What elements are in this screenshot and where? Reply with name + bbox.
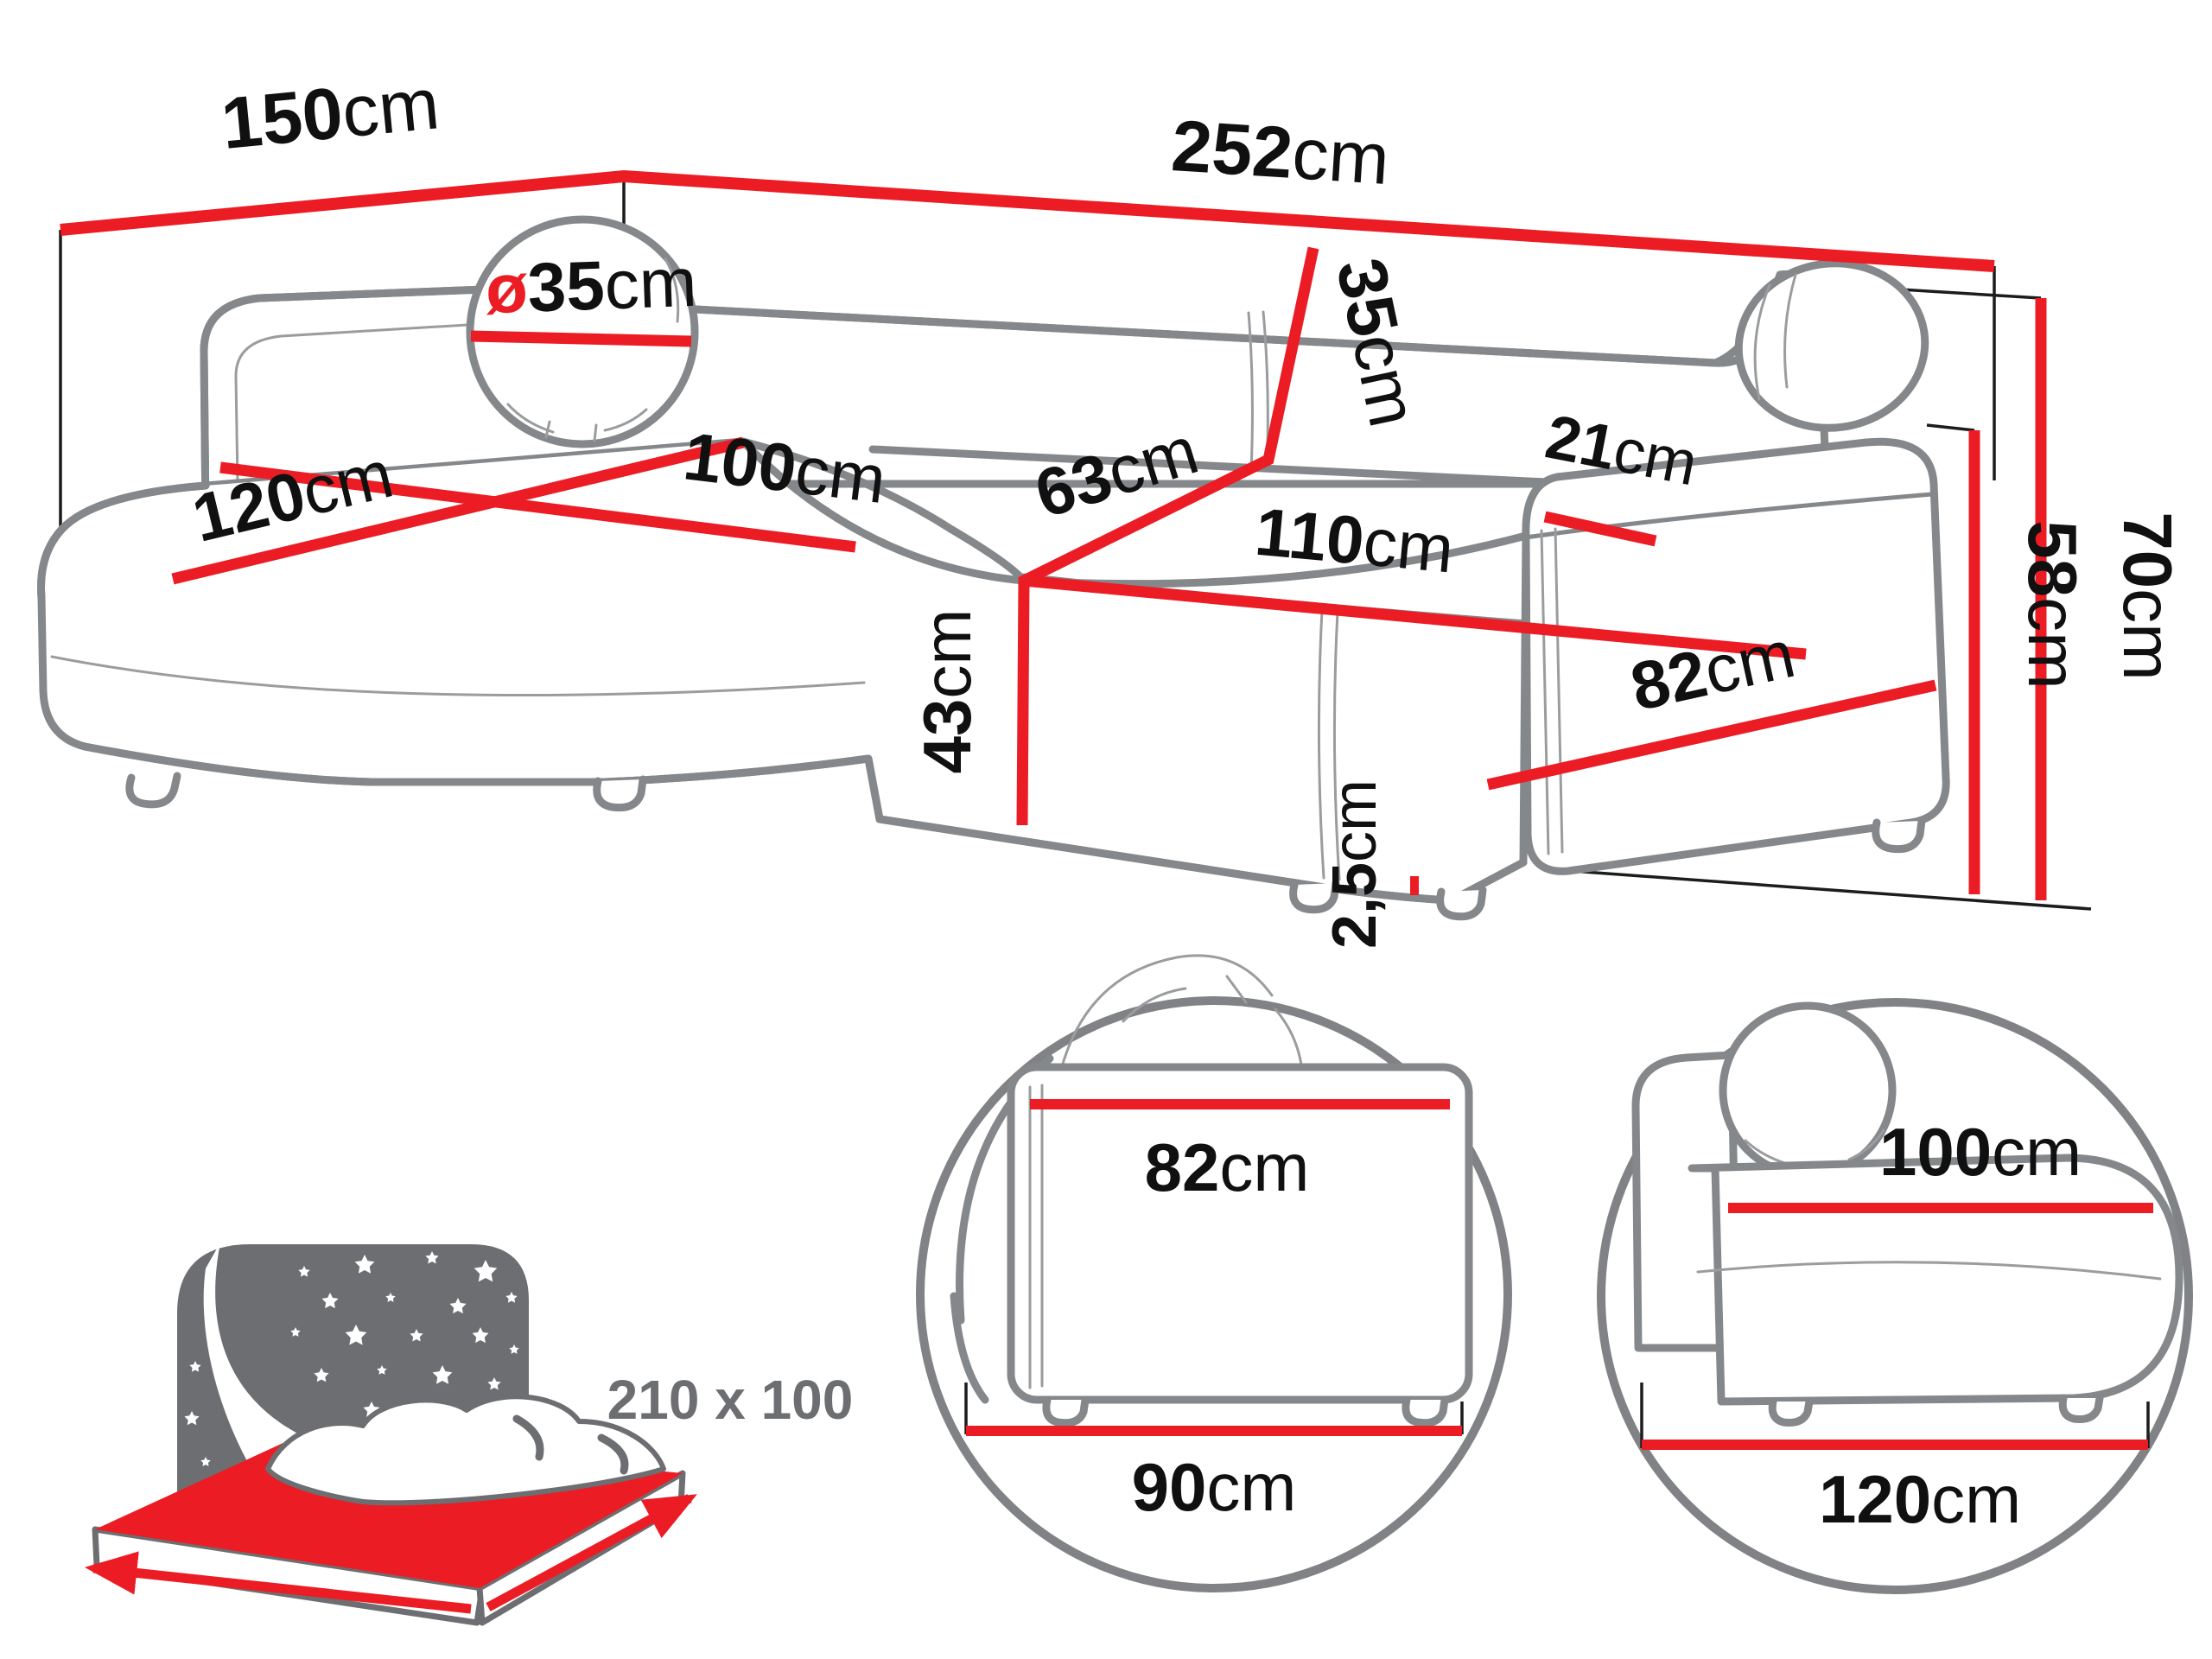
main-sofa-view: 150cm 252cm ø35cm 35cm 21cm 120cm 100cm … (41, 62, 2187, 949)
label-total-depth: 150cm (218, 62, 442, 164)
detail-circle-armrest: 82cm 90cm (920, 956, 1508, 1588)
dimension-line-150-252 (60, 176, 1994, 266)
label-total-height: 70cm (2109, 512, 2186, 681)
label-leg-height: 2,5cm (1320, 779, 1389, 949)
sofa-dimension-diagram: 150cm 252cm ø35cm 35cm 21cm 120cm 100cm … (0, 0, 2212, 1659)
detail-circle-chaise: 100cm 120cm (1601, 1002, 2189, 1590)
label-detail-armrest-bottom: 90cm (1132, 1449, 1297, 1525)
floor-connector (1548, 869, 2091, 909)
label-pillow-diameter: ø35cm (484, 244, 697, 327)
label-seat-height: 43cm (909, 609, 985, 774)
armrest-height-connector (1927, 425, 1974, 430)
label-detail-armrest-top: 82cm (1145, 1129, 1310, 1205)
sleeping-area-icon: 210 x 100 (93, 1243, 853, 1623)
label-detail-chaise-top: 100cm (1879, 1114, 2082, 1190)
dimension-line-pillow-diameter (471, 336, 691, 341)
diagram-canvas: 150cm 252cm ø35cm 35cm 21cm 120cm 100cm … (0, 0, 2212, 1659)
label-seat-front-width: 110cm (1252, 493, 1457, 588)
label-detail-chaise-bottom: 120cm (1819, 1461, 2021, 1537)
label-armrest-height: 58cm (2014, 520, 2091, 690)
label-sleeping-area: 210 x 100 (607, 1369, 854, 1431)
label-total-width: 252cm (1169, 105, 1392, 200)
